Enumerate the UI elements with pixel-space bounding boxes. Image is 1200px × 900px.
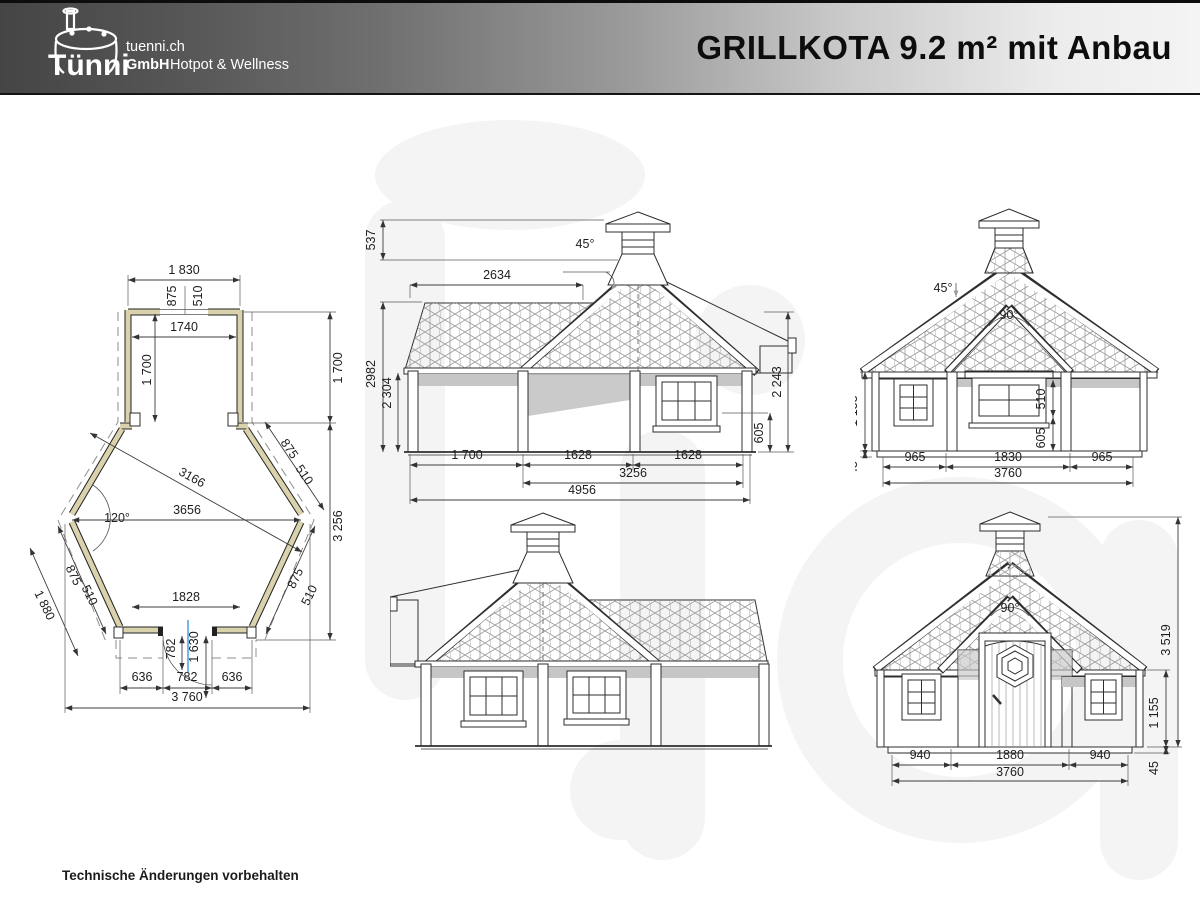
roof-overhang-outline [58,312,314,658]
side-elevation-b [390,505,805,817]
side-elevation-a: 45° 537 2982 2 304 2634 2 243 605 [360,188,800,510]
dim-label: 1628 [674,448,702,462]
dim-label: 875 [285,566,307,591]
dim-label: 510 [191,286,205,307]
dim-label: 3166 [176,465,207,491]
sheet-title: GRILLKOTA 9.2 m² mit Anbau [696,3,1172,93]
dim-label: 2982 [364,360,378,388]
rear-elevation: 90° [855,195,1195,495]
dim-label: 875 [63,563,85,588]
dim-label: 1880 [996,748,1024,762]
dim-label: 3760 [996,765,1024,779]
dim-label: 940 [910,748,931,762]
dim-label: 3656 [173,503,201,517]
dim-label: 875 [278,436,301,461]
roof [390,565,768,667]
dim-label: 636 [132,670,153,684]
dim-label: 90° [1000,308,1019,322]
dim-label: 3256 [619,466,647,480]
dim-label: 1 700 [331,352,345,383]
dim-label: 1830 [994,450,1022,464]
dim-label: 537 [364,230,378,251]
dim-label: 636 [222,670,243,684]
dim-label: 510 [299,583,321,608]
chimney [980,512,1040,576]
dim-label: 2 304 [380,377,394,408]
company-logo: Tünni tuenni.ch GmbH Hotpot & Wellness [14,3,314,95]
window [894,379,933,426]
window [564,671,629,725]
dim-label: 1628 [564,448,592,462]
logo-tagline: Hotpot & Wellness [170,57,289,73]
dim-label: 510 [1034,389,1048,410]
window [902,674,941,720]
dim-label: 510 [293,462,316,487]
dim-label: 782 [177,670,198,684]
dim-label: 3 519 [1159,624,1173,655]
window [461,671,526,727]
dim-label: 510 [79,583,101,608]
dim-label: 1828 [172,590,200,604]
dim-label: 2 243 [770,366,784,397]
angle-annotation: 45° [563,237,614,290]
dim-label: 965 [1092,450,1113,464]
dim-label: 45 [855,461,860,475]
dim-label: 90° [1001,601,1020,615]
drawing-sheet: Tünni tuenni.ch GmbH Hotpot & Wellness G… [0,0,1200,900]
footer-note: Technische Änderungen vorbehalten [62,868,299,883]
dim-label: 45° [576,237,595,251]
logo-tub-icon [56,29,116,49]
dim-label: 4956 [568,483,596,497]
dim-label: 3760 [994,466,1022,480]
dim-label: 45° [934,281,953,295]
dim-label: 940 [1090,748,1111,762]
dim-label: 120° [104,511,130,525]
dim-label: 1 630 [187,631,201,662]
floor-plan-view: 1 830 875 510 1740 1 700 1 700 3 256 316… [20,250,365,725]
roof [404,268,796,374]
anbau-opening [160,310,208,315]
angle-annotation: 45° [934,281,956,297]
logo-site: tuenni.ch [126,39,185,55]
dim-label: 1 880 [31,588,57,622]
dim-label: 605 [752,423,766,444]
chimney [979,209,1039,273]
front-elevation: 90° [860,500,1200,832]
window [653,376,720,432]
dim-label: 3 256 [331,510,345,541]
dim-label: 2634 [483,268,511,282]
logo-brand: Tünni [48,49,130,82]
dim-label: 3 760 [171,690,202,704]
dim-label: 45 [1147,761,1161,775]
dim-label: 1740 [170,320,198,334]
logo-company: GmbH [126,57,170,73]
dim-label: 1 155 [1147,697,1161,728]
entrance-door [979,633,1051,747]
dim-label: 1 155 [855,395,860,426]
roof: 90° [862,267,1157,378]
window [1085,674,1122,720]
dim-label: 1 700 [140,354,154,385]
header-band: Tünni tuenni.ch GmbH Hotpot & Wellness G… [0,0,1200,95]
dim-label: 875 [165,286,179,307]
dim-label: 782 [164,639,178,660]
dim-label: 965 [905,450,926,464]
dim-label: 605 [1034,428,1048,449]
dim-label: 1 700 [451,448,482,462]
dim-label: 1 830 [168,263,199,277]
